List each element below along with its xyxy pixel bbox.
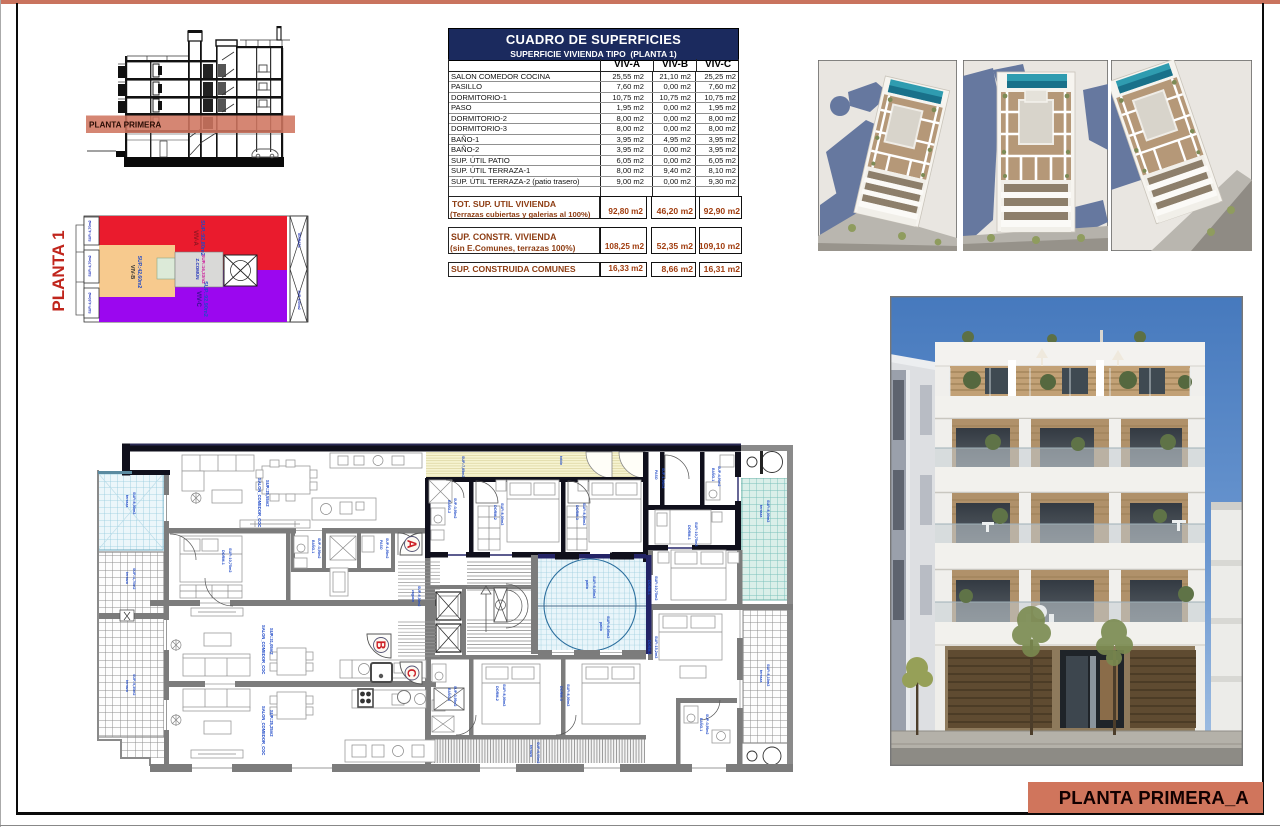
svg-text:SALON_COMEDOR_COC: SALON_COMEDOR_COC xyxy=(261,625,266,674)
svg-text:DORM-1: DORM-1 xyxy=(647,640,651,655)
svg-text:BAÑO-1: BAÑO-1 xyxy=(711,468,716,481)
svg-text:DORM-3: DORM-3 xyxy=(575,505,579,520)
svg-text:SUP.:3,95m2: SUP.:3,95m2 xyxy=(317,538,321,558)
svg-text:patio: patio xyxy=(585,580,589,590)
svg-text:SUP.:92,90m2: SUP.:92,90m2 xyxy=(202,281,208,317)
svg-text:SUP.:92,80m2: SUP.:92,80m2 xyxy=(199,220,205,256)
svg-text:SUP.:4,95m2: SUP.:4,95m2 xyxy=(717,466,721,486)
svg-text:SUP.:1,95m2: SUP.:1,95m2 xyxy=(661,468,665,488)
svg-text:terraza: terraza xyxy=(125,495,129,508)
svg-text:SUP.:9,30m2: SUP.:9,30m2 xyxy=(132,674,136,695)
svg-text:SUP.:10,75m2: SUP.:10,75m2 xyxy=(654,576,658,600)
svg-text:SUP.:3,95m2: SUP.:3,95m2 xyxy=(453,686,457,706)
svg-text:SUP.:4,70m2: SUP.:4,70m2 xyxy=(88,255,92,276)
svg-text:SUP.:1,95m2: SUP.:1,95m2 xyxy=(385,538,389,558)
svg-text:BAÑO-1: BAÑO-1 xyxy=(311,540,316,553)
svg-text:SUP.:3,95m2: SUP.:3,95m2 xyxy=(453,498,457,518)
svg-text:SALON_COMEDOR_COC: SALON_COMEDOR_COC xyxy=(257,478,262,527)
svg-text:PLANTA PRIMERA: PLANTA PRIMERA xyxy=(89,121,161,130)
svg-text:DORM-2: DORM-2 xyxy=(495,686,499,701)
svg-text:terraza: terraza xyxy=(529,745,533,758)
svg-text:A: A xyxy=(405,539,419,548)
svg-text:terraza: terraza xyxy=(125,572,129,585)
svg-text:VIV-C: VIV-C xyxy=(195,291,201,307)
svg-text:SUP.:25,25m2: SUP.:25,25m2 xyxy=(269,710,274,737)
svg-text:SUP.:4,60m2: SUP.:4,60m2 xyxy=(88,292,92,313)
svg-text:TERRAZA: TERRAZA xyxy=(297,232,301,248)
svg-text:PASO: PASO xyxy=(654,470,658,480)
svg-text:SALON_COMEDOR_COC: SALON_COMEDOR_COC xyxy=(261,706,266,755)
svg-text:DORM-1: DORM-1 xyxy=(687,525,691,540)
svg-text:SUP.:42,60m2: SUP.:42,60m2 xyxy=(136,256,142,289)
svg-text:SUP.:9,00m2: SUP.:9,00m2 xyxy=(297,290,301,310)
svg-text:VIV-B: VIV-B xyxy=(129,265,135,279)
svg-text:SUP.:25,55m2: SUP.:25,55m2 xyxy=(265,480,270,507)
svg-text:SUP.:3,95m2: SUP.:3,95m2 xyxy=(705,714,709,734)
svg-text:SUP.:8,10m2: SUP.:8,10m2 xyxy=(766,664,770,686)
svg-text:SUP.:16,33m2: SUP.:16,33m2 xyxy=(201,254,206,284)
svg-text:SUP.:8,00m2: SUP.:8,00m2 xyxy=(502,684,506,706)
svg-text:SUP.:6,05m2: SUP.:6,05m2 xyxy=(592,576,596,598)
svg-text:SUP.:15,2m2: SUP.:15,2m2 xyxy=(654,636,658,658)
svg-text:terraza: terraza xyxy=(759,505,763,518)
svg-text:zaguan: zaguan xyxy=(411,590,415,602)
svg-text:DORM-3: DORM-3 xyxy=(559,686,563,701)
svg-text:DORM-1: DORM-1 xyxy=(647,580,651,595)
svg-text:B: B xyxy=(374,640,388,649)
svg-text:SUP.:31,05m2: SUP.:31,05m2 xyxy=(269,628,274,655)
svg-text:SUP.:8,00m2: SUP.:8,00m2 xyxy=(566,684,570,706)
svg-text:SUP.:4,70m2: SUP.:4,70m2 xyxy=(88,220,92,241)
svg-text:DORM-2: DORM-2 xyxy=(493,505,497,520)
svg-text:C: C xyxy=(405,669,419,678)
svg-text:terraza: terraza xyxy=(759,670,763,683)
svg-text:BAÑO-1: BAÑO-1 xyxy=(699,718,704,731)
svg-text:SUP.:8,00m2: SUP.:8,00m2 xyxy=(132,492,136,514)
svg-text:PASO: PASO xyxy=(379,540,383,550)
svg-text:SUP.:10,75m2: SUP.:10,75m2 xyxy=(228,548,232,572)
svg-text:SUP.:8,00m2: SUP.:8,00m2 xyxy=(766,500,770,522)
svg-text:PLANTA 1: PLANTA 1 xyxy=(49,230,68,311)
svg-text:BAÑO-2: BAÑO-2 xyxy=(447,500,452,513)
svg-text:SUP.:9,30m2: SUP.:9,30m2 xyxy=(417,586,421,606)
svg-text:BAÑO-2: BAÑO-2 xyxy=(447,688,452,701)
svg-text:DORM-1: DORM-1 xyxy=(221,550,225,565)
svg-text:SUP.:10,75m2: SUP.:10,75m2 xyxy=(694,522,698,546)
svg-text:SUP.:9,00m2: SUP.:9,00m2 xyxy=(536,742,540,763)
svg-text:SUP.:4,70m2: SUP.:4,70m2 xyxy=(132,568,136,589)
svg-text:SUP.:7,85m2: SUP.:7,85m2 xyxy=(461,456,465,477)
svg-text:VIV-A: VIV-A xyxy=(192,230,198,246)
svg-text:Z.COMÚN: Z.COMÚN xyxy=(195,259,201,280)
svg-text:toldo: toldo xyxy=(559,456,563,466)
svg-text:SUP.:8,00m2: SUP.:8,00m2 xyxy=(500,503,504,525)
svg-text:SUP.:8,00m2: SUP.:8,00m2 xyxy=(582,503,586,525)
svg-text:terraza: terraza xyxy=(125,680,129,693)
svg-text:patio: patio xyxy=(599,622,603,632)
svg-text:SUP.:6,05m2: SUP.:6,05m2 xyxy=(606,616,610,638)
